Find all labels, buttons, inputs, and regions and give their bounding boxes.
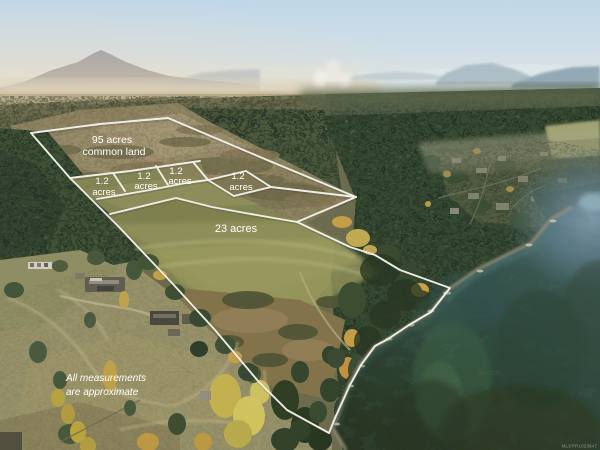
svg-text:23 acres: 23 acres: [215, 223, 258, 235]
svg-text:1.2: 1.2: [95, 176, 108, 187]
svg-text:MLS®R1023647: MLS®R1023647: [561, 443, 597, 450]
svg-text:acres: acres: [92, 187, 115, 198]
svg-text:1.2: 1.2: [231, 171, 244, 182]
svg-text:95 acres: 95 acres: [92, 134, 132, 146]
svg-text:common land: common land: [82, 146, 145, 158]
svg-text:All measurements: All measurements: [65, 373, 146, 384]
svg-text:are approximate: are approximate: [66, 387, 139, 398]
svg-text:acres: acres: [134, 181, 157, 192]
svg-text:acres: acres: [229, 182, 252, 193]
svg-text:acres: acres: [168, 176, 191, 187]
